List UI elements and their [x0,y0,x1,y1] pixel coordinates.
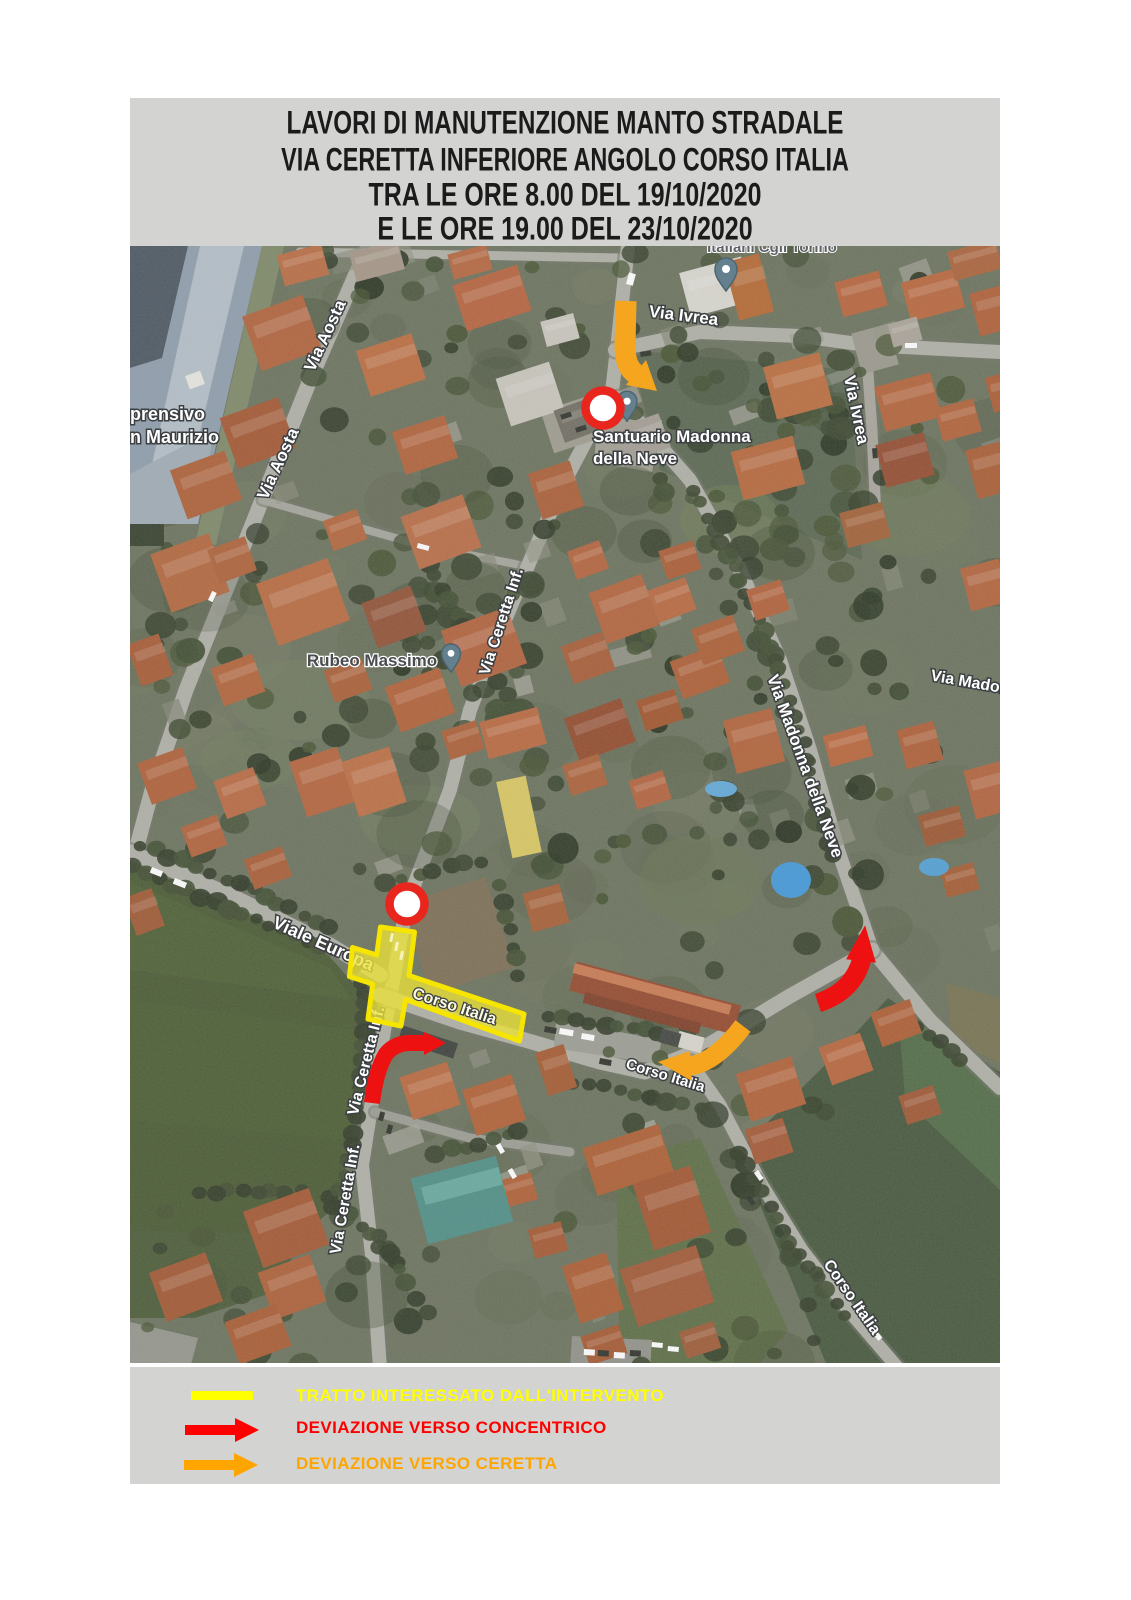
svg-text:della Neve: della Neve [593,449,677,468]
svg-text:Rubeo Massimo: Rubeo Massimo [307,651,437,670]
svg-text:Italiani Cgil Torino: Italiani Cgil Torino [707,246,837,256]
svg-text:prensivo: prensivo [130,404,205,424]
svg-text:n Maurizio: n Maurizio [130,427,219,447]
svg-text:Santuario Madonna: Santuario Madonna [593,427,751,446]
